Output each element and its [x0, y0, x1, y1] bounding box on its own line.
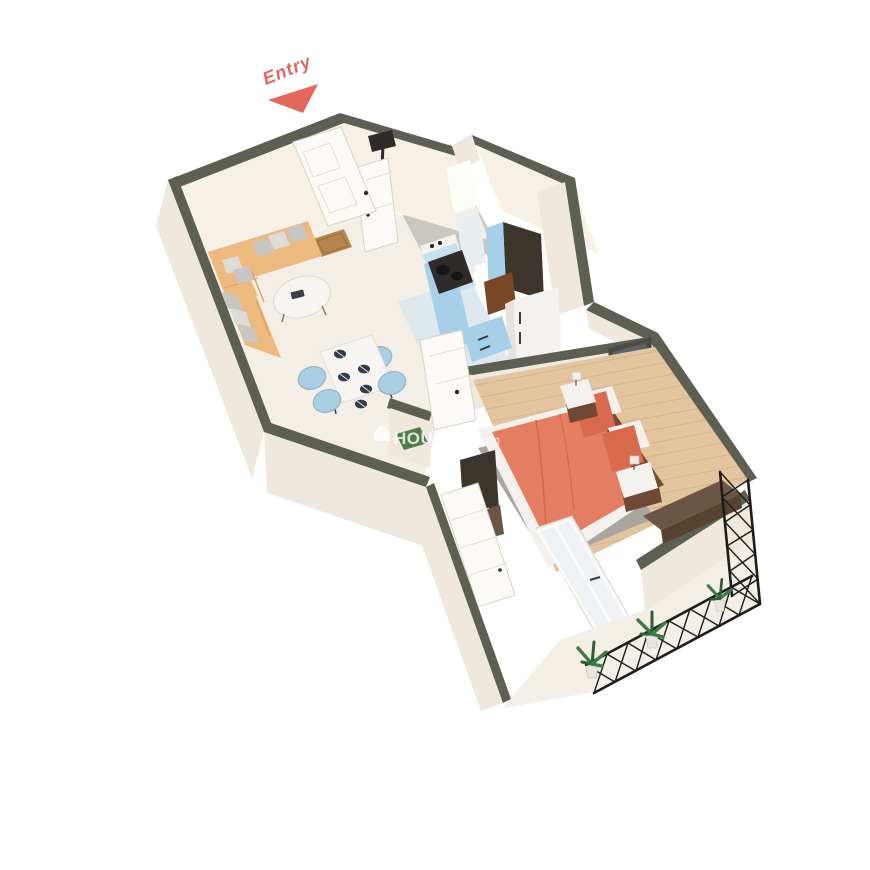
floor-plan-3d-rendering: Entry HOUSING .com [0, 0, 870, 870]
toiletry-bottle [438, 241, 442, 245]
wardrobe-handle [498, 568, 502, 572]
table-lamp [572, 372, 581, 380]
floor-plan-canvas: Entry HOUSING .com [0, 0, 870, 870]
watermark-suffix: .com [472, 433, 500, 447]
watermark-brand: HOUSING [394, 429, 477, 448]
entry-label: Entry [260, 51, 315, 89]
entry-arrow-icon [268, 84, 318, 113]
entry-annotation: Entry [260, 51, 318, 113]
table-lamp [630, 456, 639, 464]
bedroom-door-handle [455, 390, 459, 394]
stove-burner [436, 265, 450, 275]
toiletry-bottle [430, 244, 434, 248]
stove-burner [451, 272, 463, 281]
entry-door-handle [364, 191, 368, 195]
